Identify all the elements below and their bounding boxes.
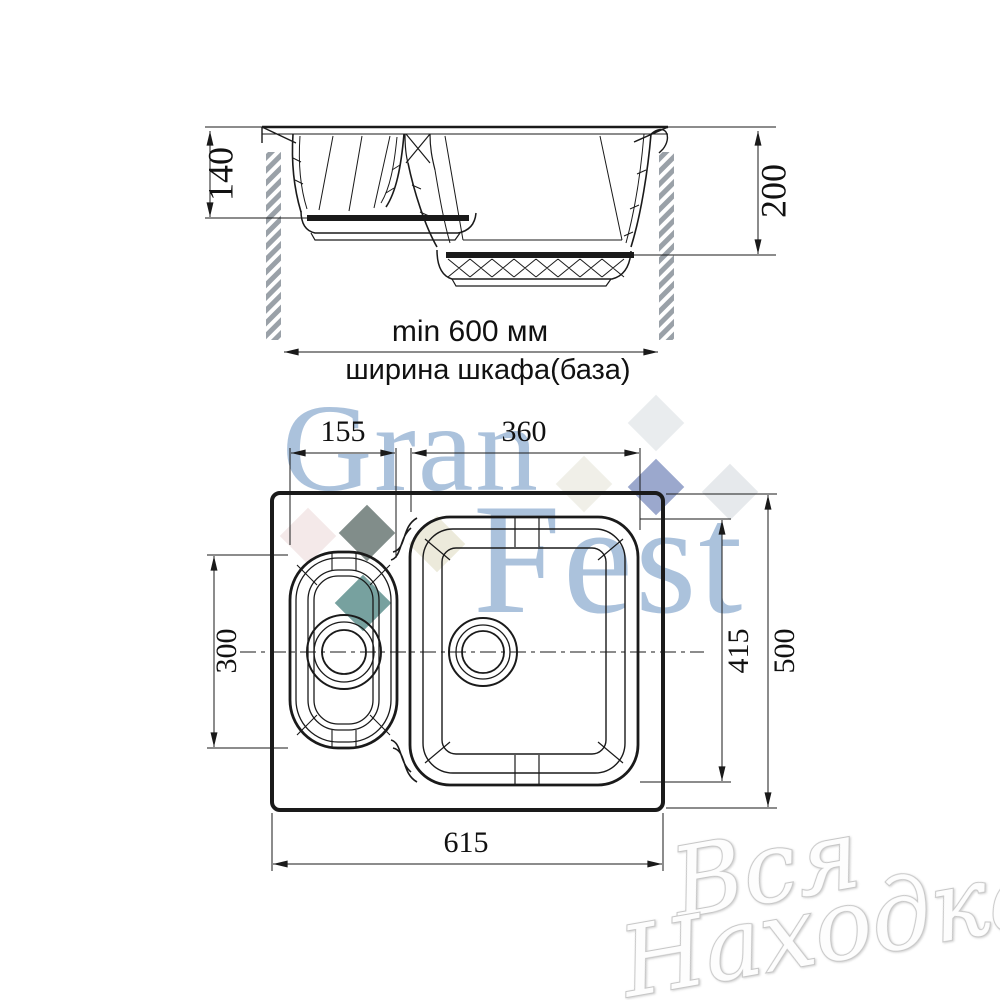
store-watermark: Вся Находка	[598, 767, 1000, 1000]
plan-small-bowl	[290, 552, 397, 748]
dim-label-415: 415	[722, 629, 755, 674]
dim-label-615: 615	[444, 826, 489, 859]
cabinet-wall-hatch-left	[266, 152, 281, 340]
section-main-bowl	[408, 134, 651, 286]
dim-label-200: 200	[753, 164, 793, 218]
diamond-icon	[628, 395, 685, 452]
dimension-main-bowl-depth: 200	[632, 131, 793, 255]
section-view: 140 200 min 600 мм ширина шкафа(база)	[200, 127, 793, 386]
dimension-overall-width: 615	[272, 813, 663, 871]
dim-label-155: 155	[321, 415, 366, 448]
cabinet-wall-hatch-right	[659, 152, 674, 340]
dim-label-140: 140	[200, 147, 240, 201]
diamond-icon	[335, 575, 392, 632]
cabinet-width-caption: ширина шкафа(база)	[345, 354, 630, 386]
section-small-bowl	[292, 134, 476, 240]
cabinet-min-width-label: min 600 мм	[392, 315, 548, 348]
sink-dimension-drawing-page: Gran Fest Вся Находка	[0, 0, 1000, 1000]
diamond-icon	[409, 516, 466, 573]
dimension-small-bowl-length: 300	[207, 555, 288, 748]
section-sink-rim	[205, 127, 776, 153]
sink-technical-drawing: Gran Fest Вся Находка	[0, 0, 1000, 1000]
dim-label-360: 360	[502, 415, 547, 448]
section-bowl-divider	[405, 134, 435, 170]
dimension-cabinet-width: min 600 мм ширина шкафа(база)	[284, 315, 658, 386]
brand-text-fest: Fest	[473, 472, 744, 647]
dim-label-300: 300	[210, 629, 243, 674]
dim-label-500: 500	[768, 629, 801, 674]
bowl-bottom-cross-hatch	[448, 259, 624, 277]
bowl-connector-curves	[391, 518, 417, 782]
